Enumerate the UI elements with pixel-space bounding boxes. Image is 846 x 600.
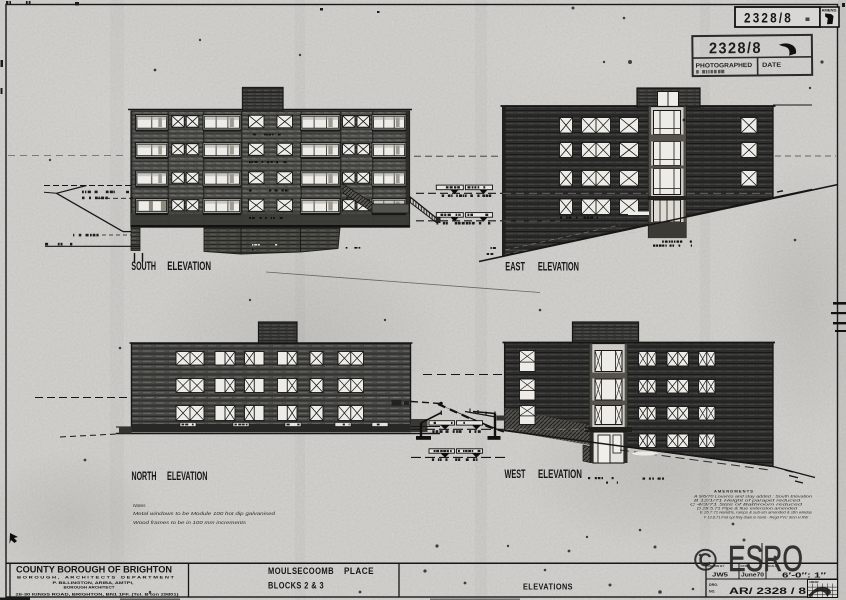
svg-text:PLACE: PLACE bbox=[344, 566, 374, 576]
svg-text:AMEND: AMEND bbox=[809, 580, 819, 584]
svg-text:DATE: DATE bbox=[762, 62, 781, 69]
svg-text:BLOCKS 2 & 3: BLOCKS 2 & 3 bbox=[268, 581, 324, 591]
svg-text:ELEVATIONS: ELEVATIONS bbox=[523, 583, 573, 592]
svg-text:PHOTOGRAPHED: PHOTOGRAPHED bbox=[696, 62, 753, 70]
svg-text:Notes: Notes bbox=[133, 503, 146, 509]
svg-text:B O R O U G H , A R C H I T E: B O R O U G H , A R C H I T E C T S D E … bbox=[17, 575, 175, 580]
svg-text:NORTH: NORTH bbox=[132, 471, 157, 483]
svg-text:E 26.7.71 Handrls, ramps & s: E 26.7.71 Handrls, ramps & sub-stn amend… bbox=[700, 511, 812, 515]
svg-text:ELEVATION: ELEVATION bbox=[167, 261, 211, 273]
svg-text:EAST: EAST bbox=[505, 262, 525, 274]
svg-text:SOUTH: SOUTH bbox=[131, 261, 156, 273]
svg-text:NO.: NO. bbox=[709, 590, 715, 594]
svg-text:ESRO: ESRO bbox=[728, 538, 803, 579]
svg-text:26-30 KINGS ROAD, BRIGHT: 26-30 KINGS ROAD, BRIGHTON, BN1 1FF. (Te… bbox=[16, 591, 180, 596]
svg-text:2328/8: 2328/8 bbox=[744, 11, 793, 26]
svg-text:Metal windows to be Module 100: Metal windows to be Module 100 hot dip g… bbox=[133, 511, 276, 516]
svg-text:DRG.: DRG. bbox=[709, 583, 718, 587]
svg-text:Wood frames to be in 100 mm in: Wood frames to be in 100 mm increments bbox=[133, 520, 247, 525]
svg-text:F 13.8.71 Fnd opt finly drai: F 13.8.71 Fnd opt finly drain in hand - … bbox=[704, 516, 809, 520]
svg-text:MOULSECOOMB: MOULSECOOMB bbox=[268, 566, 334, 576]
svg-text:ELEVATION: ELEVATION bbox=[538, 469, 582, 481]
svg-text:WEST: WEST bbox=[505, 469, 526, 481]
svg-text:A M E N D M E N T S: A M E N D M E N T S bbox=[714, 489, 753, 494]
svg-text:©: © bbox=[694, 543, 717, 578]
svg-text:2328/8: 2328/8 bbox=[709, 40, 762, 58]
svg-text:AMEND.: AMEND. bbox=[822, 9, 838, 13]
svg-text:COUNTY BOROUGH OF BRIGHTON: COUNTY BOROUGH OF BRIGHTON bbox=[16, 564, 172, 574]
svg-text:BOROUGH ARCHITECT: BOROUGH ARCHITECT bbox=[64, 585, 116, 590]
svg-text:ELEVATION: ELEVATION bbox=[167, 471, 208, 483]
svg-text:ELEVATION: ELEVATION bbox=[538, 262, 579, 274]
svg-text:AR/ 2328 / 8: AR/ 2328 / 8 bbox=[729, 586, 806, 597]
